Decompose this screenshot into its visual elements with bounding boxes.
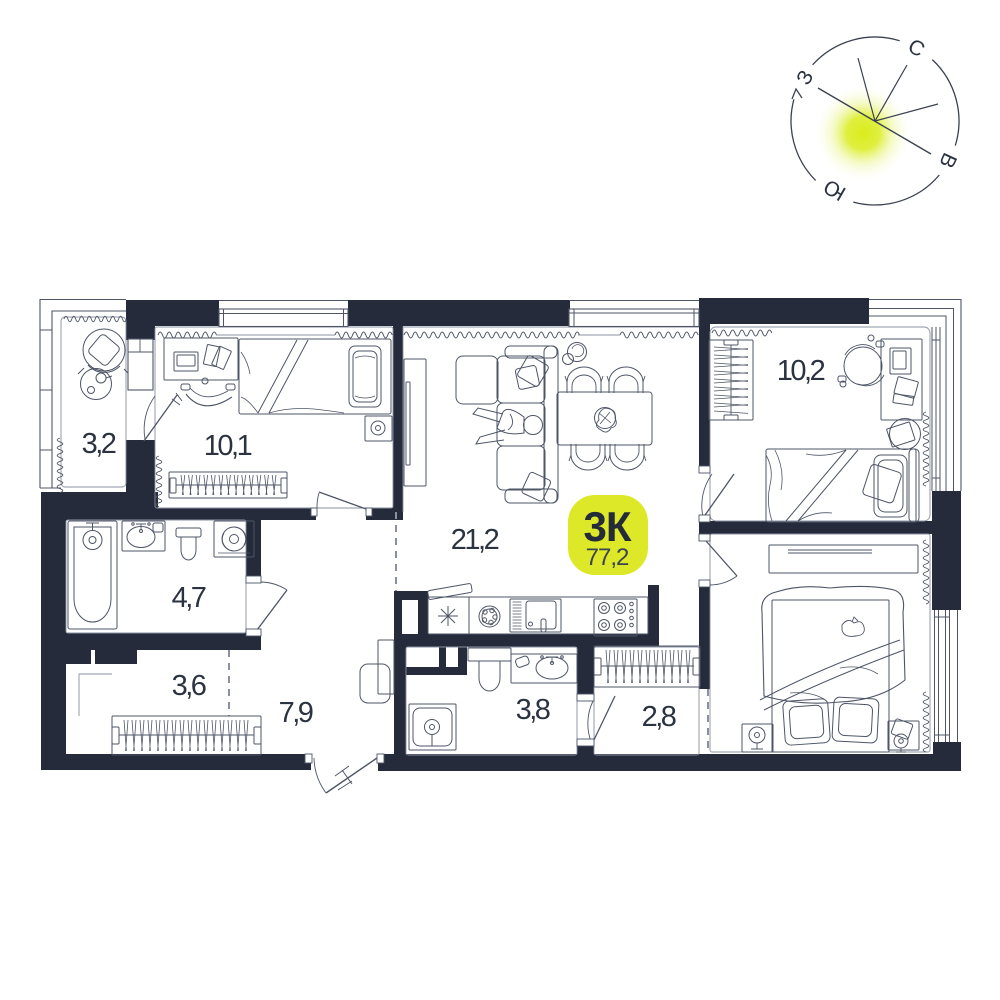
svg-text:3,6: 3,6 (172, 670, 206, 702)
svg-text:10,2: 10,2 (777, 355, 825, 387)
svg-text:4,7: 4,7 (172, 582, 206, 614)
svg-text:2,8: 2,8 (642, 701, 676, 733)
svg-text:3,2: 3,2 (82, 428, 116, 460)
svg-text:7,9: 7,9 (279, 697, 313, 729)
svg-text:10,1: 10,1 (204, 430, 252, 462)
svg-text:21,2: 21,2 (451, 524, 499, 556)
svg-text:3,8: 3,8 (516, 694, 550, 726)
svg-text:3К: 3К (584, 503, 632, 550)
svg-text:77,2: 77,2 (586, 544, 629, 571)
